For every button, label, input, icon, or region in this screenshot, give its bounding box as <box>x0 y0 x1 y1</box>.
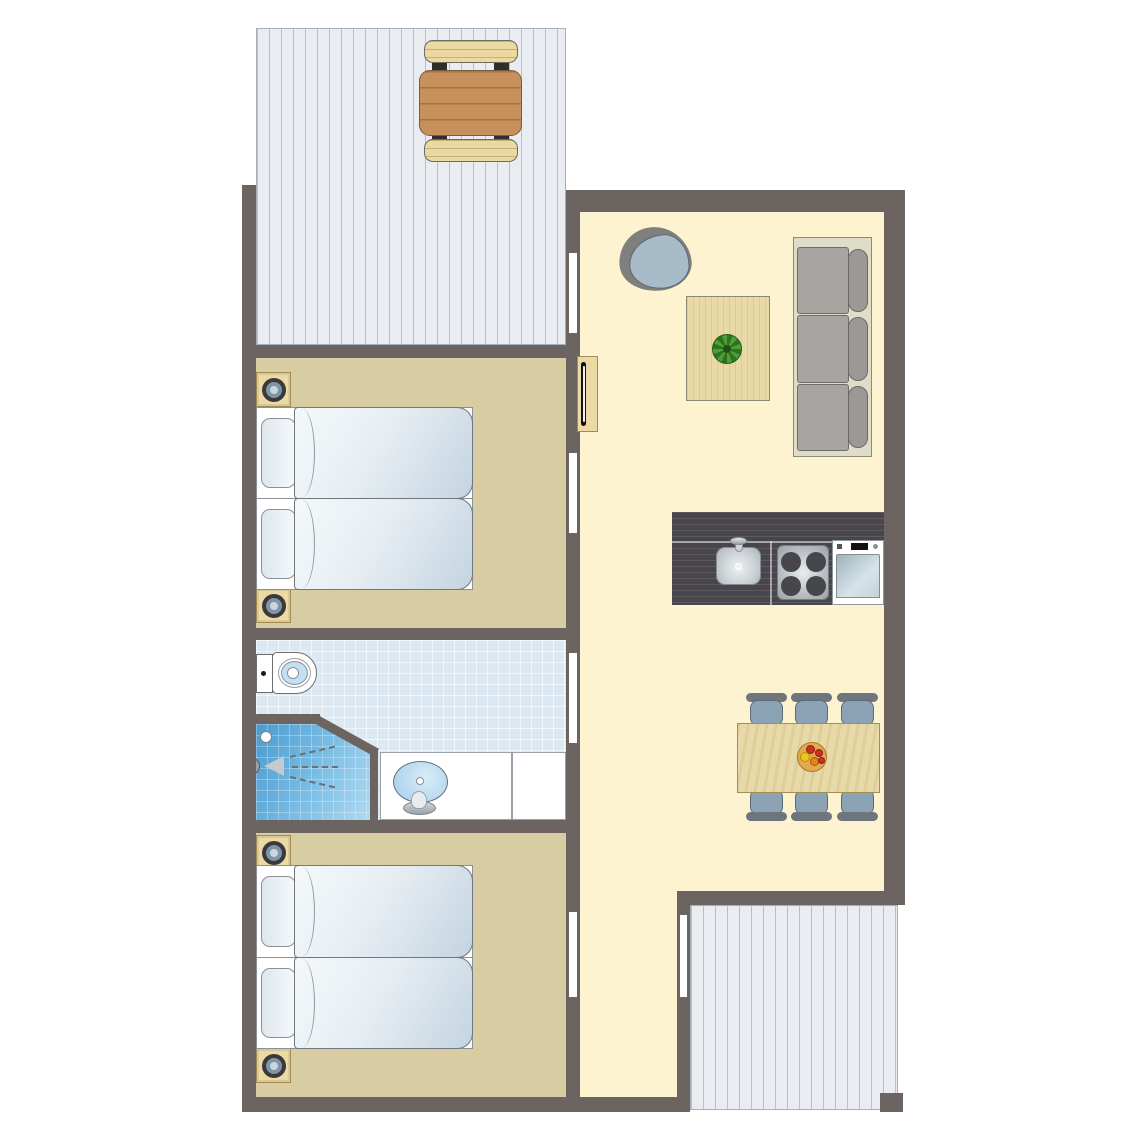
sofa-back-pillow <box>848 386 868 448</box>
burner <box>806 576 826 596</box>
counter-seam <box>770 541 772 605</box>
terrace-corner-post <box>880 1093 903 1112</box>
kitchen-faucet-spout <box>735 544 743 552</box>
wall-bedroom1-top <box>242 345 580 358</box>
bed-pillow <box>261 509 296 579</box>
fruit-red <box>818 757 825 764</box>
shower-glass-partition <box>370 748 378 820</box>
hallway-floor <box>580 891 677 1097</box>
sofa-cushion <box>797 247 849 314</box>
shower-drain <box>260 731 272 743</box>
sofa-cushion <box>797 384 849 451</box>
lamp-inner <box>270 602 278 610</box>
fruit-red <box>815 749 823 757</box>
wall-top-living <box>566 190 905 212</box>
wall-shower-stub <box>250 714 320 724</box>
chair-backrest <box>746 812 787 821</box>
tv-screen-shine <box>583 366 585 422</box>
terrace-bench-bottom <box>424 139 518 162</box>
bedroom-1-door <box>569 453 577 533</box>
sink-drain <box>735 563 742 570</box>
dishwasher-front <box>836 554 880 598</box>
wall-bottom <box>242 1097 690 1112</box>
lamp-inner <box>270 386 278 394</box>
wall-left <box>242 185 256 1112</box>
counter-seam <box>672 541 832 543</box>
terrace-bottom-deck <box>690 905 898 1110</box>
floor-plan <box>0 0 1145 1145</box>
wall-bathroom-bottom <box>242 820 580 833</box>
sofa-back-pillow <box>848 317 868 381</box>
vanity-divider <box>511 752 513 820</box>
picnic-table <box>419 70 522 136</box>
lamp-inner <box>270 1062 278 1070</box>
terrace-door-hall <box>680 915 687 997</box>
sofa-back-pillow <box>848 249 868 312</box>
bed-pillow <box>261 876 296 947</box>
lamp-inner <box>270 849 278 857</box>
bed-pillow <box>261 968 296 1038</box>
bed-pillow <box>261 418 296 488</box>
wall-bathroom-top <box>242 628 580 640</box>
plant-center <box>723 345 731 353</box>
terrace-door-living <box>569 253 577 333</box>
burner <box>781 552 801 572</box>
toilet-center <box>287 667 299 679</box>
dishwasher-button <box>837 544 842 549</box>
basin-drain <box>416 777 424 785</box>
basin-faucet <box>411 791 427 809</box>
bedroom-2-door <box>569 912 577 997</box>
bed-duvet <box>294 407 473 499</box>
toilet-flush-dot <box>261 671 266 676</box>
bathroom-door <box>569 653 577 743</box>
burner <box>806 552 826 572</box>
dishwasher-knob <box>873 544 878 549</box>
dishwasher-display <box>851 543 868 550</box>
chair-backrest <box>791 812 832 821</box>
chair-backrest <box>837 812 878 821</box>
shower-spray <box>292 766 338 768</box>
wall-right <box>884 190 905 905</box>
bed-duvet <box>294 498 473 590</box>
burner <box>781 576 801 596</box>
terrace-bench-top <box>424 40 518 63</box>
bed-duvet <box>294 957 473 1049</box>
wall-living-bottom-right <box>677 891 905 905</box>
fruit-yellow <box>800 752 810 762</box>
bed-duvet <box>294 865 473 958</box>
sofa-cushion <box>797 315 849 383</box>
